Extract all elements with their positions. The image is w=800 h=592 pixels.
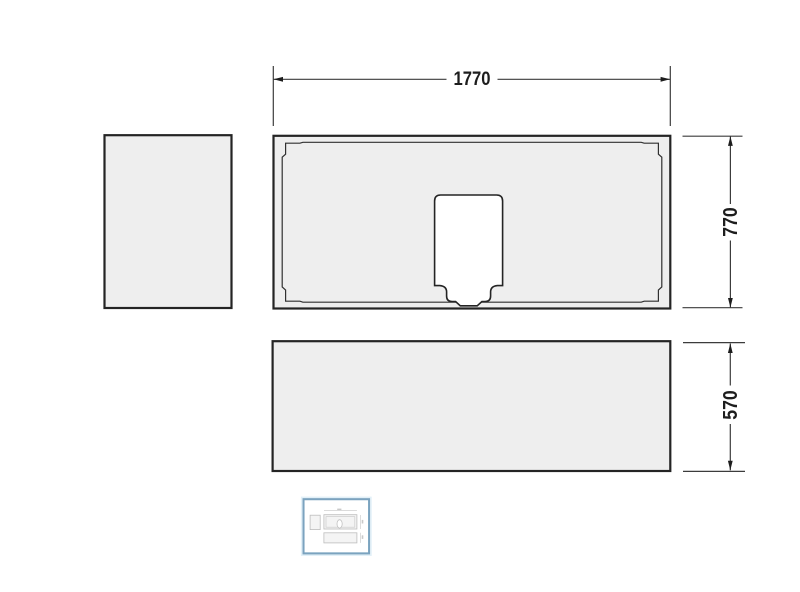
svg-text:770: 770 — [720, 207, 742, 237]
svg-text:570: 570 — [720, 390, 742, 420]
svg-text:1770: 1770 — [454, 68, 491, 90]
